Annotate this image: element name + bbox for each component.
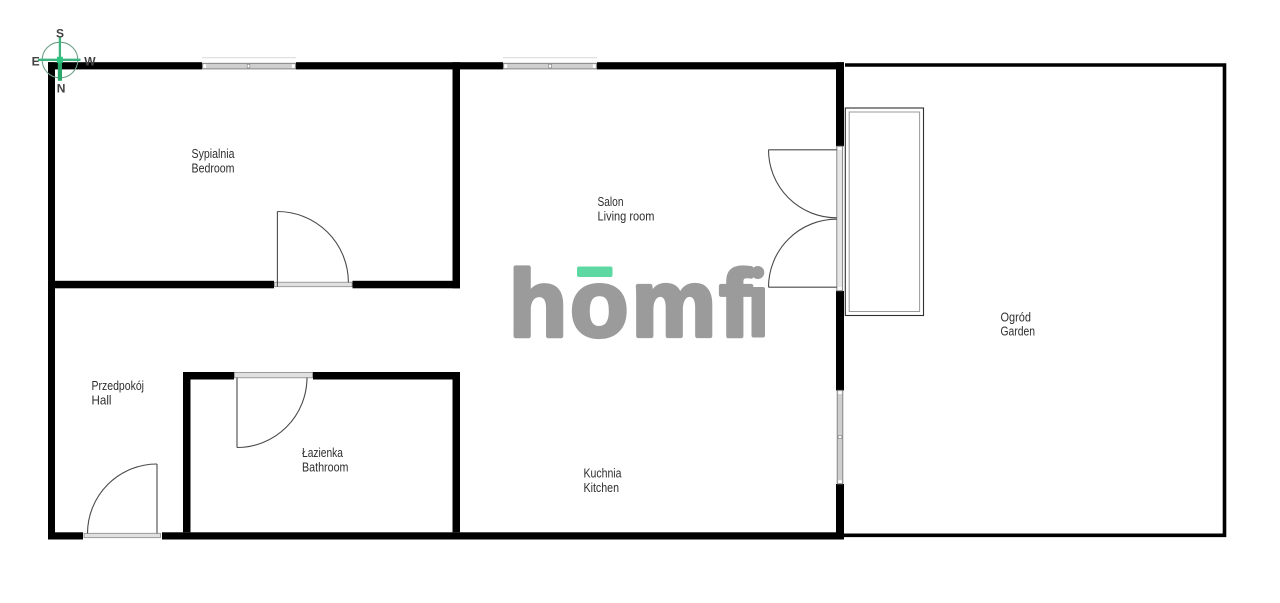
svg-text:S: S bbox=[56, 27, 64, 41]
svg-text:Garden: Garden bbox=[1001, 325, 1036, 339]
svg-text:Kuchnia: Kuchnia bbox=[584, 467, 622, 481]
svg-text:Łazienka: Łazienka bbox=[302, 446, 343, 460]
svg-text:Kitchen: Kitchen bbox=[584, 481, 620, 495]
svg-text:Living room: Living room bbox=[598, 209, 655, 223]
svg-text:Sypialnia: Sypialnia bbox=[192, 147, 235, 161]
svg-text:Ogród: Ogród bbox=[1001, 311, 1032, 325]
svg-text:E: E bbox=[32, 55, 40, 69]
svg-text:Salon: Salon bbox=[598, 195, 624, 209]
svg-text:homf: homf bbox=[509, 251, 751, 357]
svg-text:N: N bbox=[57, 82, 66, 96]
svg-text:Przedpokój: Przedpokój bbox=[92, 379, 145, 393]
svg-text:W: W bbox=[84, 55, 96, 69]
svg-text:Bedroom: Bedroom bbox=[192, 161, 235, 175]
svg-text:Bathroom: Bathroom bbox=[302, 460, 349, 474]
svg-text:Hall: Hall bbox=[92, 393, 112, 407]
